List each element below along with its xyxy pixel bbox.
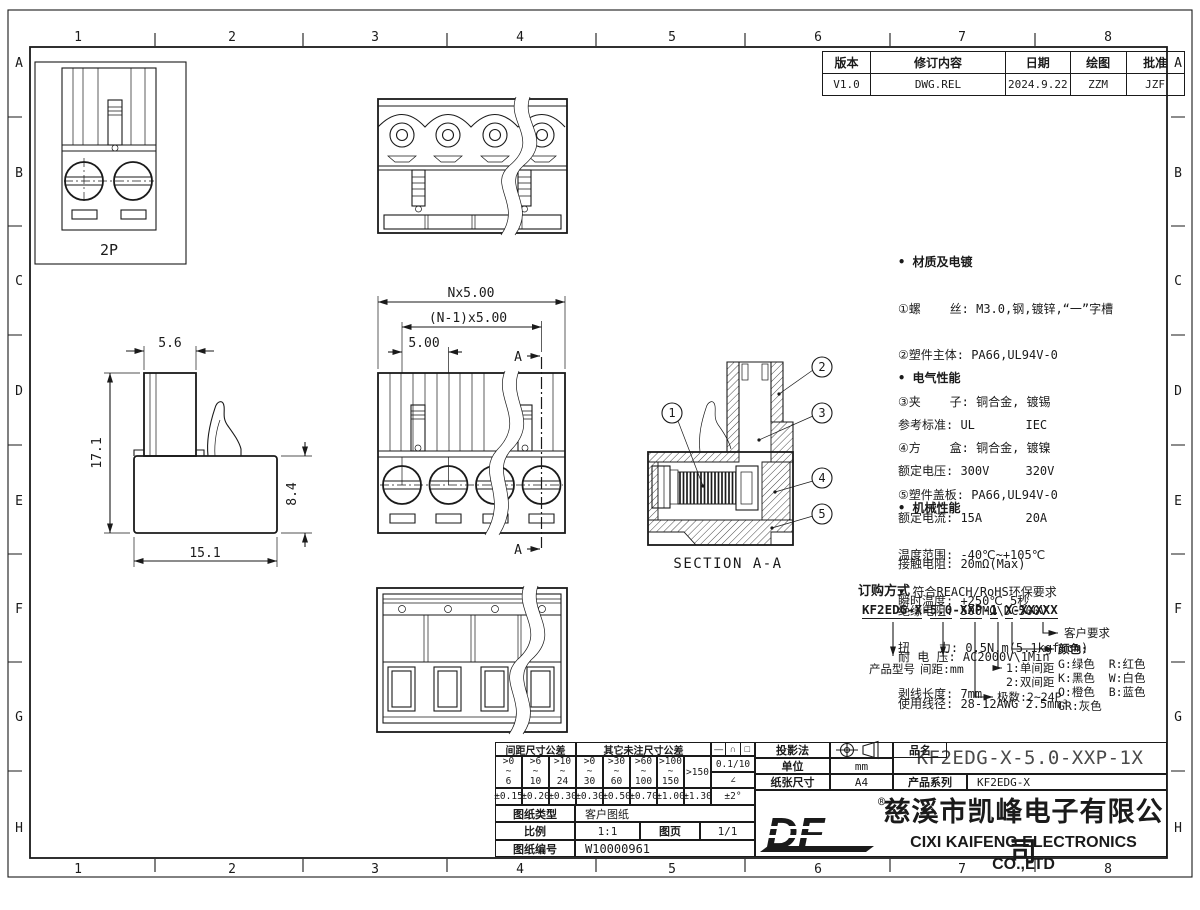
grid-row-label: B — [1174, 166, 1182, 181]
ordering-color-line: G:绿色 R:红色 — [1058, 658, 1146, 671]
doc-type-value: 客户图纸 — [575, 805, 755, 822]
ordering-pitch-single: 1:单间距 — [1006, 662, 1054, 675]
compliance-text: 符合REACH/RoHS环保要求 — [912, 585, 1056, 599]
arc-icon: ∩ — [725, 743, 739, 755]
electrical-title: 电气性能 — [912, 371, 960, 385]
rev-header-version: 版本 — [823, 52, 871, 74]
tol-symbols: —∩□ — [711, 742, 755, 756]
rev-date: 2024.9.22 — [1006, 74, 1071, 96]
grid-col-label: 3 — [371, 30, 379, 45]
ordering-color-line: GR:灰色 — [1058, 700, 1102, 713]
grid-col-label: 7 — [958, 862, 966, 877]
product-series-label: 产品系列 — [893, 774, 967, 790]
tol-range: >6~10 — [522, 756, 549, 788]
straightness-icon: — — [712, 743, 725, 755]
mechanical-title: 机械性能 — [912, 501, 960, 515]
grid-row-label: B — [15, 166, 23, 181]
callout-5: 5 — [818, 507, 825, 521]
ordering-part-number: KF2EDG-X-5.0-XXP-1 X-XXXXX — [862, 602, 1058, 617]
view-bottom — [377, 586, 567, 734]
grid-row-label: F — [15, 602, 23, 617]
drawing-sheet: 1 2 3 4 5 6 7 8 1 2 3 4 5 6 7 8 A B C D … — [0, 0, 1200, 910]
tol-range: >100~150 — [657, 756, 684, 788]
tol-range: >60~100 — [630, 756, 657, 788]
rev-header-drawn: 绘图 — [1070, 52, 1126, 74]
grid-col-label: 1 — [74, 862, 82, 877]
grid-col-label: 6 — [814, 862, 822, 877]
grid-row-label: C — [15, 274, 23, 289]
projection-label: 投影法 — [755, 742, 830, 758]
grid-col-label: 6 — [814, 30, 822, 45]
view-side: 5.6 17.1 8.4 15.1 — [90, 336, 312, 567]
section-mark-top: A — [514, 350, 522, 365]
ordering-title: 订购方式 — [858, 580, 910, 599]
part-dash: - — [952, 602, 960, 617]
part-pitch: 5.0 — [930, 602, 953, 619]
tol-flatness: 0.1/10 — [711, 756, 755, 772]
grid-row-label: E — [1174, 494, 1182, 509]
paper-size-value: A4 — [830, 774, 893, 790]
ordering-pitch-double: 2:双间距 — [1006, 676, 1054, 689]
doc-type-label: 图纸类型 — [495, 805, 575, 822]
part-custom: XXXXX — [1020, 602, 1058, 619]
grid-col-label: 1 — [74, 30, 82, 45]
dim-span-pitch: (N-1)x5.00 — [429, 311, 507, 326]
view-front: Nx5.00 (N-1)x5.00 5.00 A A — [378, 286, 565, 558]
part-row: 1 — [990, 602, 998, 619]
grid-col-label: 8 — [1104, 30, 1112, 45]
scale-value: 1:1 — [575, 822, 640, 840]
dim-overall-height: 17.1 — [90, 437, 105, 468]
rev-approved: JZF — [1126, 74, 1184, 96]
grid-col-label: 4 — [516, 30, 524, 45]
grid-row-label: A — [15, 56, 23, 71]
section-mark-bottom: A — [514, 543, 522, 558]
projection-symbol-cell — [830, 742, 893, 758]
tol-value: ±0.30 — [549, 788, 576, 805]
grid-col-label: 2 — [228, 862, 236, 877]
tol-value: ±0.20 — [522, 788, 549, 805]
tol-range: >30~60 — [603, 756, 630, 788]
grid-row-label: D — [1174, 384, 1182, 399]
part-space — [998, 602, 1006, 617]
tol-value: ±0.70 — [630, 788, 657, 805]
rev-version: V1.0 — [823, 74, 871, 96]
rev-header-date: 日期 — [1006, 52, 1071, 74]
tol-value: ±0.15 — [495, 788, 522, 805]
dim-body-width: 15.1 — [189, 546, 220, 561]
ordering-color-line: K:黑色 W:白色 — [1058, 672, 1146, 685]
grid-col-label: 8 — [1104, 862, 1112, 877]
dim-pitch: 5.00 — [408, 336, 439, 351]
grid-col-label: 7 — [958, 30, 966, 45]
pole-count-label: 2P — [100, 241, 118, 259]
product-name-label: 品名 — [893, 742, 947, 758]
grid-col-label: 5 — [668, 30, 676, 45]
part-dash: - — [1013, 602, 1021, 617]
tol-value: ±1.30 — [684, 788, 711, 805]
grid-row-label: C — [1174, 274, 1182, 289]
part-color: X — [1005, 602, 1013, 619]
ordering-color-title: 颜色: — [1058, 643, 1088, 656]
tol-other-header: 其它未注尺寸公差 — [576, 742, 711, 756]
square-icon: □ — [740, 743, 754, 755]
note-line: 参考标准: UL IEC — [898, 418, 1069, 434]
tol-range: >0~6 — [495, 756, 522, 788]
grid-row-label: E — [15, 494, 23, 509]
rev-header-approved: 批准 — [1126, 52, 1184, 74]
dim-body-height: 8.4 — [285, 482, 300, 506]
grid-row-label: H — [1174, 821, 1182, 836]
callout-3: 3 — [818, 406, 825, 420]
company-name-cn: 慈溪市凯峰电子有限公司 — [880, 792, 1167, 832]
part-dash: - — [982, 602, 990, 617]
doc-number-value: W10000961 — [575, 840, 755, 857]
part-model: KF2EDG-X — [862, 602, 922, 619]
view-section: 1 2 3 4 5 SECTION A-A — [648, 357, 832, 572]
sheet-label: 图页 — [640, 822, 700, 840]
grid-row-label: G — [1174, 710, 1182, 725]
tol-range-over: >150 — [684, 756, 711, 788]
doc-number-label: 图纸编号 — [495, 840, 575, 857]
tol-range: >10~24 — [549, 756, 576, 788]
dim-overall-pitch: Nx5.00 — [448, 286, 495, 301]
tol-angle: ±2° — [711, 788, 755, 805]
sheet-value: 1/1 — [700, 822, 755, 840]
callout-4: 4 — [818, 471, 825, 485]
view-2p-front: 2P — [35, 62, 186, 264]
unit-label: 单位 — [755, 758, 830, 774]
grid-row-label: G — [15, 710, 23, 725]
ordering-pitch-unit-label: 间距:mm — [920, 663, 964, 676]
tol-pitch-header: 间距尺寸公差 — [495, 742, 576, 756]
grid-row-label: F — [1174, 602, 1182, 617]
callout-2: 2 — [818, 360, 825, 374]
tol-value: ±0.50 — [603, 788, 630, 805]
product-series-value: KF2EDG-X — [967, 774, 1167, 790]
rev-header-content: 修订内容 — [871, 52, 1006, 74]
grid-row-label: H — [15, 821, 23, 836]
grid-row-label: D — [15, 384, 23, 399]
grid-col-label: 4 — [516, 862, 524, 877]
callout-1: 1 — [668, 406, 675, 420]
scale-label: 比例 — [495, 822, 575, 840]
ordering-poles-label: 极数:2~24P — [997, 691, 1062, 704]
rev-drawn: ZZM — [1070, 74, 1126, 96]
unit-value: mm — [830, 758, 893, 774]
tol-range: >0~30 — [576, 756, 603, 788]
part-poles: XXP — [960, 602, 983, 619]
bullet: • — [898, 371, 905, 385]
company-name-en: CIXI KAIFENG ELECTRONICS CO.,LTD — [880, 832, 1167, 854]
grid-col-label: 3 — [371, 862, 379, 877]
revision-table: 版本 修订内容 日期 绘图 批准 V1.0 DWG.REL 2024.9.22 … — [822, 51, 1185, 96]
tol-value: ±1.00 — [657, 788, 684, 805]
grid-col-label: 5 — [668, 862, 676, 877]
bullet: • — [898, 501, 905, 515]
view-top — [378, 97, 567, 235]
dim-top-width: 5.6 — [158, 336, 181, 351]
paper-size-label: 纸张尺寸 — [755, 774, 830, 790]
ordering-customer-label: 客户要求 — [1064, 627, 1110, 640]
tol-value: ±0.30 — [576, 788, 603, 805]
section-title: SECTION A-A — [673, 556, 782, 572]
angle-icon: ∠ — [711, 772, 755, 788]
bullet: • — [898, 255, 905, 269]
rev-content: DWG.REL — [871, 74, 1006, 96]
note-line: ①螺 丝: M3.0,钢,镀锌,“一”字槽 — [898, 302, 1113, 318]
material-title: 材质及电镀 — [912, 255, 972, 269]
grid-col-label: 2 — [228, 30, 236, 45]
ordering-color-line: O:橙色 B:蓝色 — [1058, 686, 1146, 699]
part-dash: - — [922, 602, 930, 617]
ordering-model-label: 产品型号 — [869, 663, 915, 676]
